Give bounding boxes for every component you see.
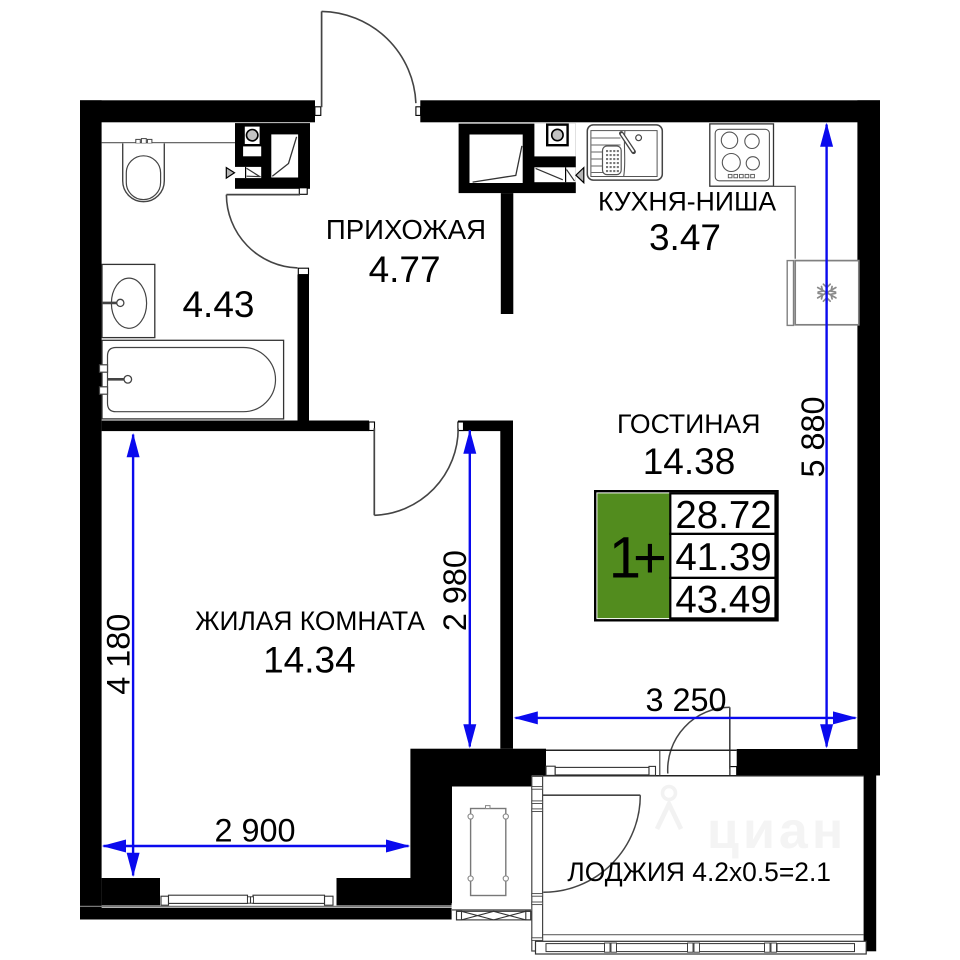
svg-text:циан: циан <box>707 802 847 860</box>
svg-text:3 250: 3 250 <box>645 682 726 718</box>
svg-text:ГОСТИНАЯ: ГОСТИНАЯ <box>617 409 760 439</box>
svg-text:ЖИЛАЯ КОМНАТА: ЖИЛАЯ КОМНАТА <box>195 606 425 636</box>
svg-text:14.38: 14.38 <box>643 441 736 482</box>
svg-text:4.43: 4.43 <box>182 284 254 325</box>
svg-text:41.39: 41.39 <box>675 536 771 579</box>
svg-text:5 880: 5 880 <box>795 396 831 477</box>
svg-text:ПРИХОЖАЯ: ПРИХОЖАЯ <box>326 214 486 245</box>
svg-text:14.34: 14.34 <box>263 640 356 681</box>
svg-text:28.72: 28.72 <box>675 494 771 537</box>
svg-text:ЛОДЖИЯ 4.2x0.5=2.1: ЛОДЖИЯ 4.2x0.5=2.1 <box>567 857 831 887</box>
svg-text:2 900: 2 900 <box>214 812 295 848</box>
svg-text:4 180: 4 180 <box>100 614 136 695</box>
svg-text:КУХНЯ-НИША: КУХНЯ-НИША <box>598 187 776 217</box>
svg-text:4.77: 4.77 <box>369 249 441 290</box>
svg-text:1+: 1+ <box>609 525 665 590</box>
svg-text:43.49: 43.49 <box>675 579 771 622</box>
svg-text:3.47: 3.47 <box>649 217 721 258</box>
svg-text:2 980: 2 980 <box>437 550 473 631</box>
